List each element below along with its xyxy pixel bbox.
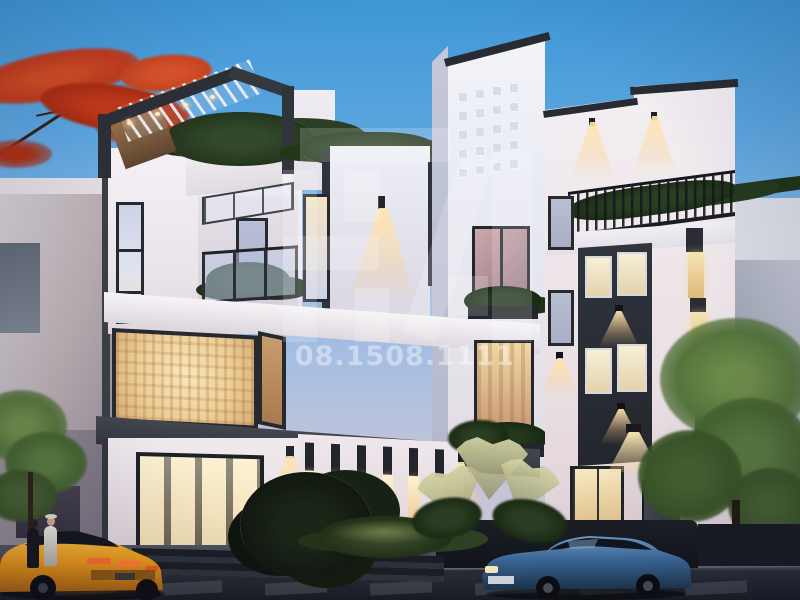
watermark-logo-block — [345, 170, 379, 222]
watermark-logo-block — [355, 288, 389, 342]
watermark-logo-block — [448, 276, 488, 316]
watermark-logo-block — [492, 150, 532, 342]
watermark-phone: 08.1508.1111 — [268, 341, 542, 373]
watermark-logo-block — [283, 236, 379, 270]
dusk-villa-render: 08.1508.1111 — [0, 0, 800, 600]
watermark-logo-block — [300, 128, 450, 162]
watermark-logo — [0, 0, 800, 600]
